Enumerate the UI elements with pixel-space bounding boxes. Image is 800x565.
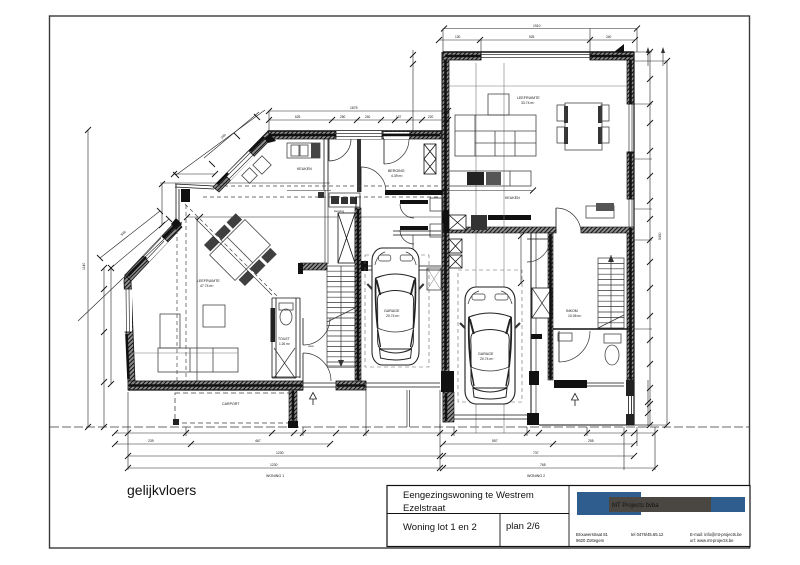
svg-text:Brouwerstraat 81: Brouwerstraat 81 xyxy=(576,532,609,537)
svg-text:525: 525 xyxy=(529,35,535,39)
svg-text:E-mail: info@mt-projects.be: E-mail: info@mt-projects.be xyxy=(690,532,742,537)
svg-text:540: 540 xyxy=(120,230,127,237)
svg-text:4.39 m²: 4.39 m² xyxy=(391,174,403,178)
svg-text:MT Projects bvba: MT Projects bvba xyxy=(612,503,659,509)
svg-text:240: 240 xyxy=(365,115,371,119)
svg-text:BERGING: BERGING xyxy=(388,169,405,173)
svg-text:137: 137 xyxy=(396,115,402,119)
svg-text:Ezelstraat: Ezelstraat xyxy=(403,503,446,514)
svg-text:WONING 1: WONING 1 xyxy=(266,474,284,478)
svg-text:240: 240 xyxy=(606,35,612,39)
svg-text:20.74 m²: 20.74 m² xyxy=(386,314,400,318)
svg-text:10.06 m²: 10.06 m² xyxy=(568,314,582,318)
svg-text:20.74 m²: 20.74 m² xyxy=(480,357,494,361)
svg-text:130: 130 xyxy=(455,35,461,39)
svg-text:KEUKEN: KEUKEN xyxy=(505,196,520,200)
svg-text:GARAGE: GARAGE xyxy=(478,352,494,356)
svg-text:GARAGE: GARAGE xyxy=(384,309,400,313)
svg-text:255: 255 xyxy=(588,439,594,443)
svg-text:1140: 1140 xyxy=(82,263,86,270)
svg-text:625: 625 xyxy=(295,115,301,119)
svg-text:250: 250 xyxy=(340,115,346,119)
svg-text:1230: 1230 xyxy=(270,463,278,467)
svg-text:1910: 1910 xyxy=(533,24,541,28)
svg-text:1.26 m²: 1.26 m² xyxy=(279,342,290,346)
svg-text:INKOM: INKOM xyxy=(566,309,578,313)
svg-text:LEEFRUIMTE: LEEFRUIMTE xyxy=(197,279,220,283)
svg-text:47.74 m²: 47.74 m² xyxy=(200,284,214,288)
svg-text:467: 467 xyxy=(255,439,261,443)
svg-text:737: 737 xyxy=(533,451,539,455)
svg-text:1675: 1675 xyxy=(350,106,358,110)
svg-text:1230: 1230 xyxy=(276,451,284,455)
svg-text:CARPORT: CARPORT xyxy=(222,402,240,406)
svg-text:WONING 2: WONING 2 xyxy=(527,474,545,478)
svg-text:Eengezingswoning te Westrem: Eengezingswoning te Westrem xyxy=(403,490,534,501)
svg-text:765: 765 xyxy=(540,463,546,467)
svg-text:tel 0476/45.65.12: tel 0476/45.65.12 xyxy=(631,532,664,537)
svg-text:plan 2/6: plan 2/6 xyxy=(506,521,540,532)
svg-text:557: 557 xyxy=(492,439,498,443)
svg-text:url: www.mt-projects.be: url: www.mt-projects.be xyxy=(690,538,734,543)
svg-text:239: 239 xyxy=(148,439,154,443)
svg-text:Woning lot 1 en 2: Woning lot 1 en 2 xyxy=(403,522,477,533)
svg-text:gelijkvloers: gelijkvloers xyxy=(127,482,196,498)
svg-text:220: 220 xyxy=(428,115,434,119)
svg-text:KEUKEN: KEUKEN xyxy=(297,167,312,171)
svg-text:TOILET: TOILET xyxy=(278,337,290,341)
svg-text:LEEFRUIMTE: LEEFRUIMTE xyxy=(517,96,540,100)
svg-text:berging: berging xyxy=(334,209,344,213)
svg-text:5430: 5430 xyxy=(658,232,662,240)
svg-text:33.74 m²: 33.74 m² xyxy=(521,101,535,105)
svg-text:9620 Zottegem: 9620 Zottegem xyxy=(576,538,605,543)
